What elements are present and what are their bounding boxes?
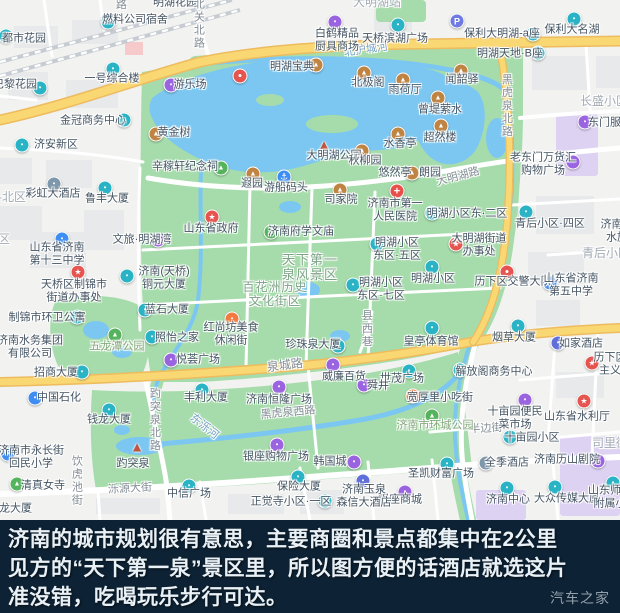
map-road-label: 黑虎泉北路 xyxy=(500,74,513,139)
map-poi-label[interactable]: 济南府学文庙 xyxy=(268,226,334,239)
map-purple-icon[interactable]: ▪ xyxy=(272,380,287,395)
caption-panel: 济南的城市规划很有意思，主要商圈和景点都集中在2公里 见方的“天下第一泉”景区里… xyxy=(0,520,620,613)
map-poi-label[interactable]: 皇亭体育馆 xyxy=(404,336,459,349)
map-poi-label[interactable]: 悦荟广场 xyxy=(176,354,220,367)
map-poi-label[interactable]: 游乐场 xyxy=(174,79,207,92)
map-poi-label[interactable]: 悠然亭 xyxy=(379,167,412,180)
map-road-label: 县西巷 xyxy=(360,310,373,349)
map-poi-label[interactable]: 圣凯财富广场 xyxy=(408,468,474,481)
map-road-label: 泺源大街 xyxy=(108,482,153,497)
map-poi-label[interactable]: 解放阁商务中心 xyxy=(456,366,533,379)
map-poi-label[interactable]: 天桥区制锦市街道办事处 xyxy=(41,278,107,303)
map-poi-label[interactable]: 明湖天地·B座 xyxy=(477,48,543,61)
map-poi-label[interactable]: 大明湖街道办事处 xyxy=(452,232,507,257)
map-poi-label[interactable]: 游船码头 xyxy=(264,182,308,195)
caption-line: 见方的“天下第一泉”景区里，所以图方便的话酒店就选这片 xyxy=(8,554,620,583)
map-poi-label[interactable]: 天桥滨湖广场 xyxy=(362,33,428,46)
screenshot: ▪▪▪▪▪▪▪P▪▪▪▪▪▲●▲▲▲▲▲▲▲▲▲▲▲▲⚓▲+▪▪▪▪▪★▲★▪▪… xyxy=(0,0,620,613)
map-poi-label[interactable]: 钱龙大厦 xyxy=(87,414,131,427)
map-poi-label[interactable]: 金龙大厦 xyxy=(0,503,32,516)
map-poi-label[interactable]: 济安新区 xyxy=(34,139,78,152)
map-poi-label[interactable]: 山东省水利厅 xyxy=(544,411,610,424)
map-poi-label[interactable]: 一号综合楼 xyxy=(85,73,140,86)
map-poi-label[interactable]: 山东省济南第五中学 xyxy=(544,272,599,297)
map-poi-label[interactable]: 金冠商务中心 xyxy=(60,115,126,128)
map-poi-label[interactable]: 明湖宝典 xyxy=(270,61,314,74)
map-poi-label[interactable]: 十亩园便民菜市场 xyxy=(488,405,543,430)
map-poi-label[interactable]: 东门服装 xyxy=(588,117,620,130)
map-poi-label[interactable]: 正觉寺小区·一区 xyxy=(251,496,332,509)
map-teal-icon[interactable]: ▪ xyxy=(15,138,30,153)
map-dist-label: 区 xyxy=(0,233,10,247)
map-poi-label[interactable]: 遐园 xyxy=(241,178,263,191)
map-canvas[interactable]: ▪▪▪▪▪▪▪P▪▪▪▪▪▲●▲▲▲▲▲▲▲▲▲▲▲▲⚓▲+▪▪▪▪▪★▲★▪▪… xyxy=(0,0,620,520)
map-poi-label[interactable]: 雨荷厅 xyxy=(389,84,422,97)
map-poi-label[interactable]: 山东省济南第十三中学 xyxy=(30,241,85,266)
map-green2-label: 济南市环城公园 xyxy=(397,420,474,433)
map-poi-label[interactable]: 济南市第一人民医院 xyxy=(368,197,423,222)
map-poi-label[interactable]: 保利大明湖-a座 xyxy=(464,28,540,41)
map-poi-label[interactable]: 水香亭 xyxy=(384,138,417,151)
map-poi-label[interactable]: 济南玉泉森信大酒店 xyxy=(337,483,392,508)
map-poi-label[interactable]: 保险大厦 xyxy=(277,481,321,494)
map-poi-label[interactable]: 山东省政府 xyxy=(184,223,239,236)
map-dot-icon[interactable]: ● xyxy=(233,69,248,84)
map-poi-label[interactable]: 清真女寺 xyxy=(21,480,65,493)
map-poi-label[interactable]: 济南(天桥)铜元大厦 xyxy=(138,265,189,290)
map-green2-label: 五龙潭公园 xyxy=(90,341,145,354)
map-poi-label[interactable]: 红尚坊美食休闲街 xyxy=(204,321,259,346)
map-dist-label: 大明湖站 xyxy=(353,0,401,10)
map-poi-label[interactable]: 中信广场 xyxy=(167,488,211,501)
map-poi-label[interactable]: 曾堤萦水 xyxy=(418,104,462,117)
map-poi-label[interactable]: 银座购物广场 xyxy=(243,451,309,464)
map-road-label: 大明湖路 xyxy=(435,165,481,189)
map-dist-label: 青后小区 xyxy=(582,247,620,261)
map-poi-label[interactable]: 燃料公司宿舍 xyxy=(102,14,168,27)
map-star-icon[interactable]: ★ xyxy=(71,265,86,280)
map-teal-icon[interactable]: ▪ xyxy=(425,321,440,336)
map-road-label: 泉城路 xyxy=(266,357,303,375)
caption-line: 准没错，吃喝玩乐步行可达。 xyxy=(8,583,620,612)
map-road-label: 饮虎池街 xyxy=(70,455,83,507)
map-poi-label[interactable]: 珍珠泉大厦 xyxy=(286,339,341,352)
map-poi-label[interactable]: 朗园 xyxy=(419,167,441,180)
map-poi-label[interactable]: 历下区交警大队 xyxy=(475,276,552,289)
map-poi-label[interactable]: 制锦市环卫公寓 xyxy=(9,312,86,325)
map-poi-label[interactable]: 济南解水族 xyxy=(601,218,620,243)
map-poi-label[interactable]: 明湖花园 xyxy=(153,0,197,9)
map-poi-label[interactable]: 如家酒店 xyxy=(559,338,603,351)
map-poi-label[interactable]: 文旅·明湖湾 xyxy=(113,234,172,247)
map-purple-icon[interactable]: ▪ xyxy=(347,455,362,470)
map-green-label: 天下第一泉风景区 xyxy=(282,253,338,283)
map-green-label: 百花洲历史文化街区 xyxy=(242,281,307,309)
map-poi-label[interactable]: 鲁丰大厦 xyxy=(85,193,129,206)
map-dist-label: 司里街 xyxy=(592,437,620,451)
map-poi-label[interactable]: 威廉百货 xyxy=(322,371,366,384)
map-poi-label[interactable]: 明湖小区东区·七区 xyxy=(357,276,405,301)
map-poi-label[interactable]: 烟草大厦 xyxy=(492,332,536,345)
map-poi-label[interactable]: 闻韶驿 xyxy=(446,74,479,87)
map-poi-label[interactable]: 彩虹大酒店 xyxy=(26,188,81,201)
map-poi-label[interactable]: 山东师范附属小 xyxy=(588,484,620,509)
map-teal-icon[interactable]: ▪ xyxy=(391,18,406,33)
map-poi-label[interactable]: 蓝石大厦 xyxy=(145,304,189,317)
map-poi-label[interactable]: 宽厚里小吃街 xyxy=(407,392,473,405)
map-road-label: 黑虎泉西路 xyxy=(260,404,316,421)
map-poi-label[interactable]: 济南恒隆广场 xyxy=(246,394,312,407)
map-poi-label[interactable]: 黄金树 xyxy=(158,127,191,140)
map-poi-label[interactable]: 司家院 xyxy=(325,194,358,207)
map-teal-icon[interactable]: ▪ xyxy=(120,269,135,284)
map-water-label: 东泺河 xyxy=(187,412,221,442)
map-poi-label[interactable]: 全季酒店 xyxy=(485,457,529,470)
map-road-label: 趵突泉北路 xyxy=(148,388,161,453)
map-dist-label: 长盛小区 xyxy=(580,95,620,109)
map-pagoda-icon[interactable]: ▲ xyxy=(131,440,144,453)
map-poi-label[interactable]: 辛稼轩纪念祠 xyxy=(152,161,218,174)
map-poi-label[interactable]: 济南中心 xyxy=(486,494,530,507)
map-poi-label[interactable]: 明湖小区东·二区 xyxy=(427,208,508,221)
map-poi-label[interactable]: 丰利大厦 xyxy=(184,392,228,405)
map-poi-label[interactable]: 韩国城 xyxy=(314,456,347,469)
caption-line: 济南的城市规划很有意思，主要商圈和景点都集中在2公里 xyxy=(8,525,620,554)
map-poi-label[interactable]: 老东门万货汇购物广场 xyxy=(510,151,576,176)
map-poi-label[interactable]: 巴黎花园 xyxy=(0,79,37,92)
map-poi-label[interactable]: 都市花园 xyxy=(2,33,46,46)
map-poi-label[interactable]: 招商大厦 xyxy=(34,367,78,380)
map-poi-label[interactable]: 中国石化 xyxy=(37,392,81,405)
map-poi-label[interactable]: 舜井 xyxy=(367,380,389,393)
map-poi-label[interactable]: 白鹤精品厨具商场 xyxy=(315,27,359,52)
map-poi-label[interactable]: 明湖小区东区·五区 xyxy=(373,236,421,261)
map-poi-label[interactable]: 济南市永长街回民小学 xyxy=(0,444,64,469)
map-poi-label[interactable]: 青后小区·四区 xyxy=(515,218,585,231)
map-road-label: 北关北路 xyxy=(192,0,205,50)
map-poi-label[interactable]: 北极阁 xyxy=(352,77,385,90)
map-poi-label[interactable]: 秋柳园 xyxy=(349,155,382,168)
map-poi-label[interactable]: 趵突泉 xyxy=(117,458,150,471)
map-poi-label[interactable]: 十亩园小区 xyxy=(505,432,560,445)
map-poi-label[interactable]: 照怡之家 xyxy=(155,332,199,345)
map-poi-label[interactable]: 超然楼 xyxy=(424,132,457,145)
map-cross-icon[interactable]: + xyxy=(390,184,405,199)
map-poi-label[interactable]: 保利大名湖 xyxy=(545,24,600,37)
autohome-watermark: 汽车之家 xyxy=(550,588,610,608)
map-dist-label: 区-北区 xyxy=(0,191,26,205)
map-pagoda-icon[interactable]: ▲ xyxy=(318,138,331,151)
map-star-icon[interactable]: ★ xyxy=(577,394,592,409)
map-poi-label[interactable]: 明湖小区 xyxy=(411,273,455,286)
map-poi-label[interactable]: 济南水务集团有限公司 xyxy=(0,334,63,359)
map-labels-layer: ▪▪▪▪▪▪▪P▪▪▪▪▪▲●▲▲▲▲▲▲▲▲▲▲▲▲⚓▲+▪▪▪▪▪★▲★▪▪… xyxy=(0,0,620,520)
map-road-label: 路 xyxy=(114,0,127,12)
map-poi-label[interactable]: 历下区主义 xyxy=(594,351,620,376)
map-parking-icon[interactable]: P xyxy=(450,14,465,29)
map-poi-label[interactable]: 济南历山剧院 xyxy=(534,454,600,467)
